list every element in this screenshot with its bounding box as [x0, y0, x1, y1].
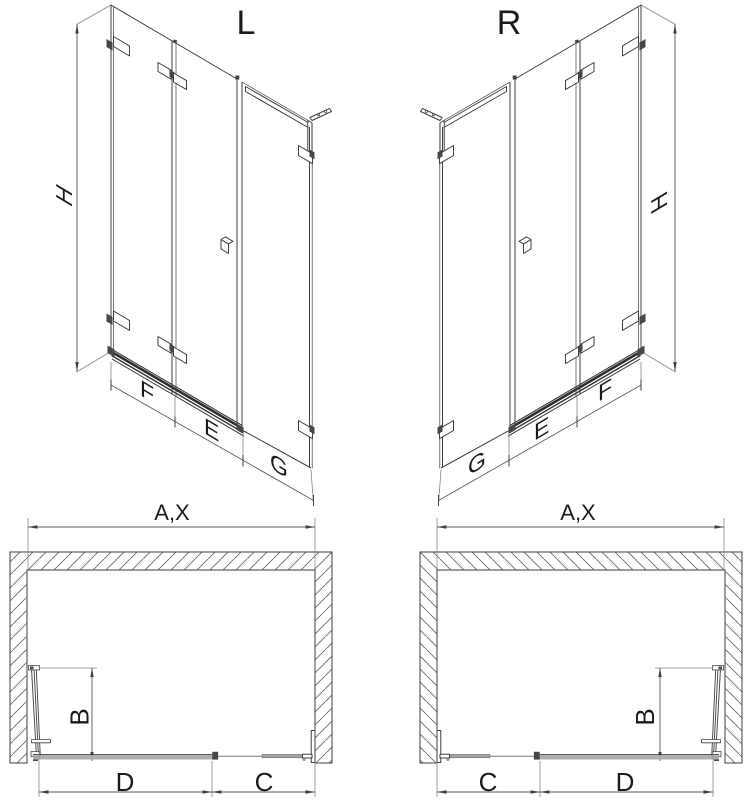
g-dimension-label-right: G	[468, 445, 486, 482]
c-dimension-label-left: C	[255, 767, 274, 797]
plan-structure-right	[420, 518, 742, 797]
b-dimension-label-left: B	[65, 708, 95, 725]
plan-structure-left	[10, 518, 332, 797]
technical-drawing: L H F E G R H F E G A,X B D C A,X B C D	[0, 0, 752, 800]
diagram-canvas: L H F E G R H F E G A,X B D C A,X B C D	[0, 0, 752, 800]
c-dimension-label-right: C	[479, 767, 498, 797]
d-dimension-label-left: D	[116, 767, 135, 797]
width-dimension-label-right: A,X	[560, 500, 596, 525]
b-dimension-label-right: B	[630, 708, 660, 725]
h-dimension-label-right: H	[647, 186, 673, 218]
iso-left-title: L	[237, 4, 256, 42]
width-dimension-label-left: A,X	[154, 500, 190, 525]
iso-right-title: R	[497, 4, 522, 42]
h-dimension-label-left: H	[52, 180, 78, 212]
d-dimension-label-right: D	[616, 767, 635, 797]
